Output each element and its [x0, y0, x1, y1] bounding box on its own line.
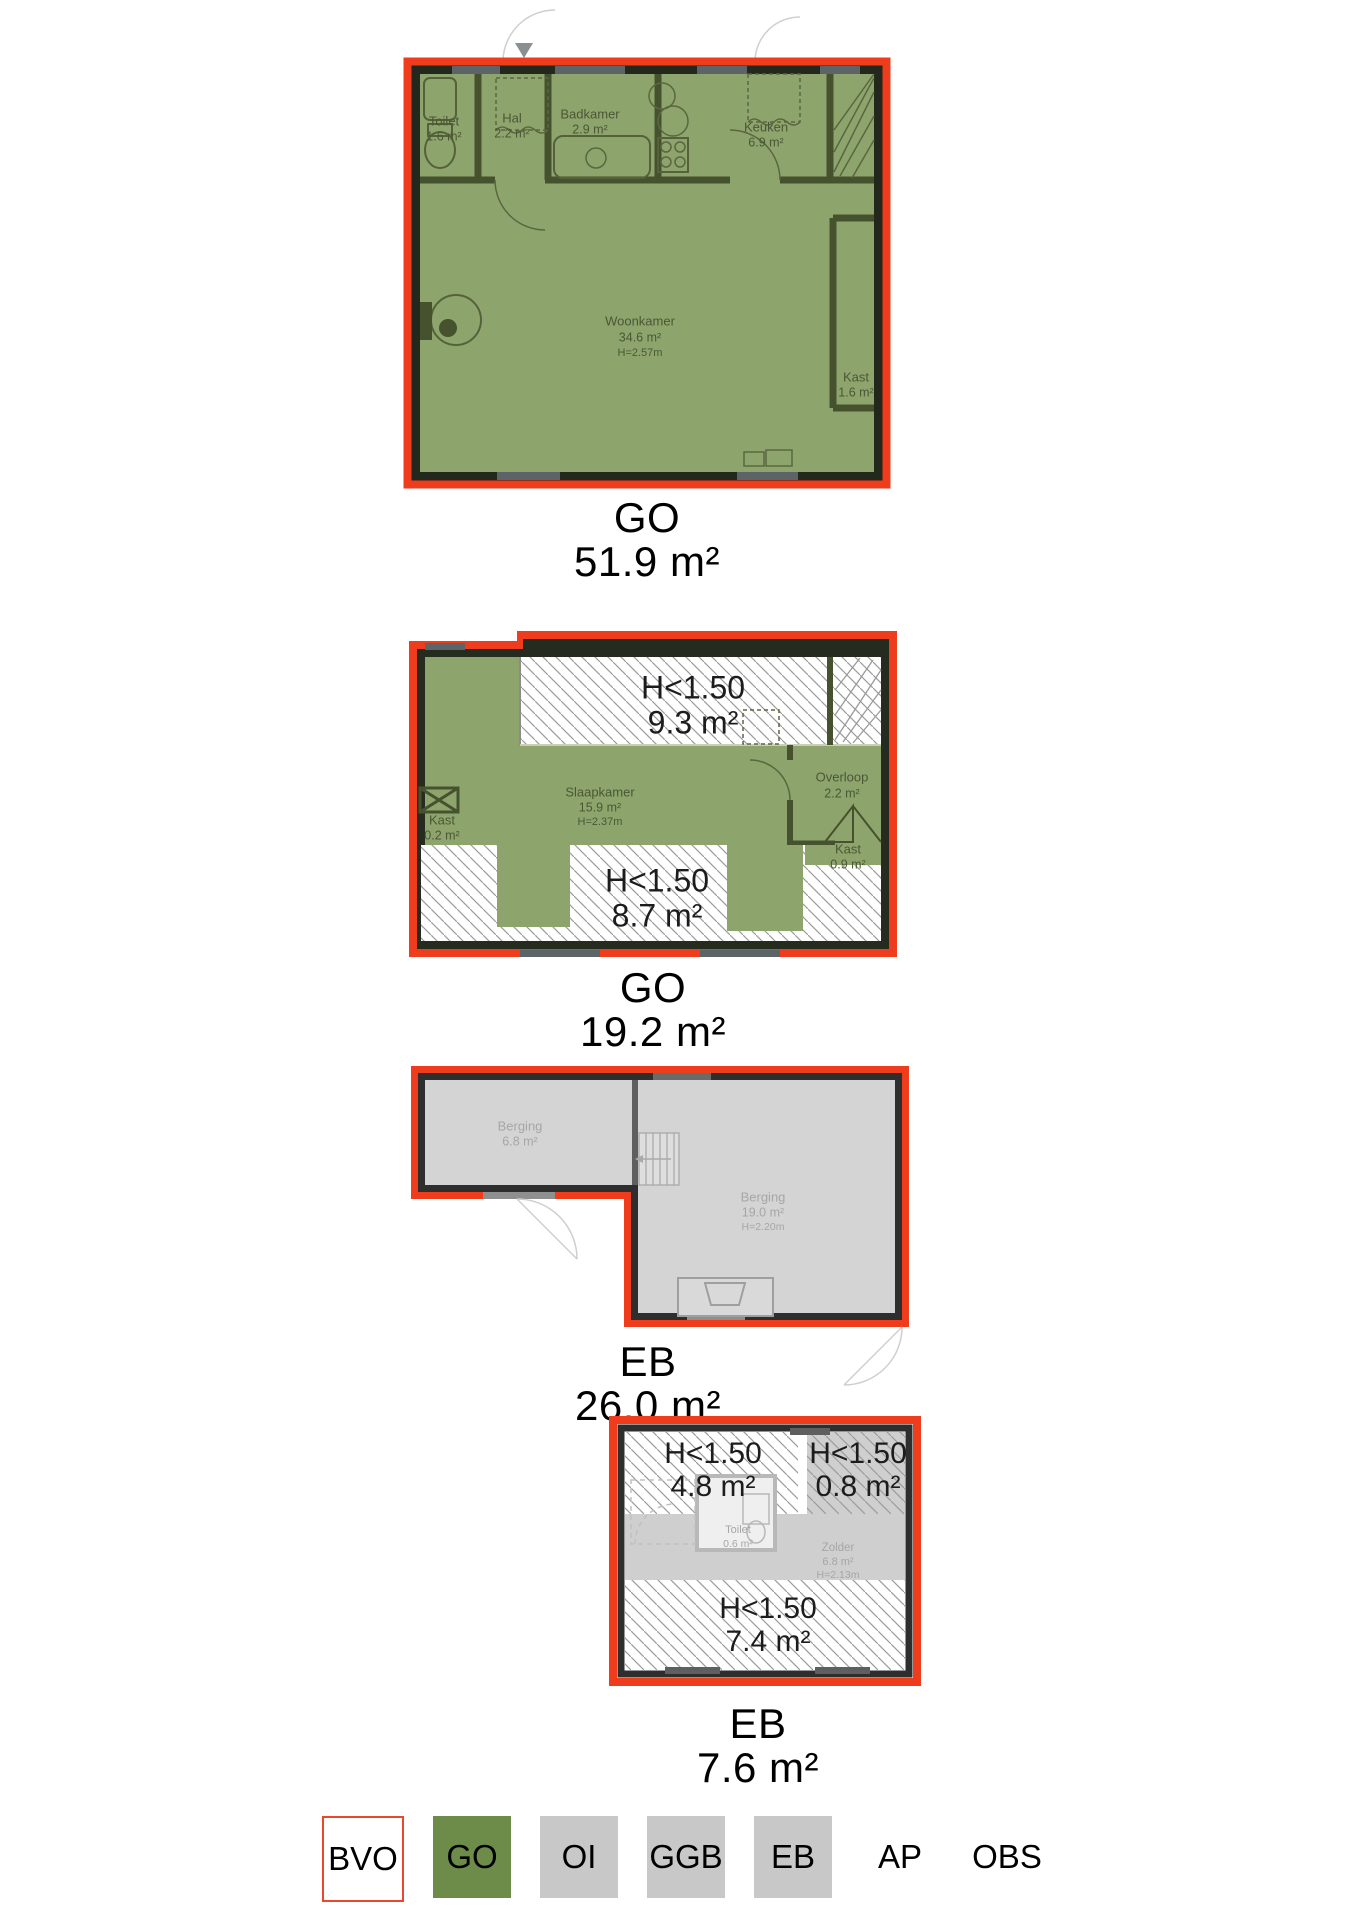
room-berging-large-area: 19.0 m² [742, 1205, 784, 1219]
room-toilet-name: Toilet [725, 1524, 751, 1536]
exterior-door-arcs [503, 10, 800, 60]
plan4-type: EB [608, 1702, 908, 1746]
room-toilet-area: 1.6 m² [426, 129, 461, 143]
h150-bottom-area: 8.7 m² [612, 897, 703, 933]
plan3-type: EB [498, 1340, 798, 1384]
legend-item-obs: OBS [968, 1816, 1046, 1898]
room-kast-name: Kast [843, 369, 869, 384]
room-berging-small-area: 6.8 m² [502, 1134, 537, 1148]
room-woonkamer-name: Woonkamer [605, 313, 676, 328]
stairs-icon [635, 1133, 679, 1185]
h150-bottom-name: H<1.50 [719, 1592, 817, 1625]
measurement-sheet: Toilet 1.6 m² Hal 2.2 m² Badkamer 2.9 m²… [0, 0, 1358, 1920]
room-overloop-name: Overloop [816, 769, 869, 784]
h150-right-area: 0.8 m² [815, 1470, 900, 1503]
legend-item-eb: EB [754, 1816, 832, 1898]
divider-wall [798, 1432, 807, 1514]
go-area-fill [420, 74, 874, 472]
h150-top-name: H<1.50 [641, 669, 745, 705]
room-berging-large-height: H=2.20m [742, 1221, 785, 1233]
legend-item-ap: AP [861, 1816, 939, 1898]
room-berging-small-name: Berging [498, 1118, 543, 1133]
door-arc-right [844, 1327, 902, 1385]
room-zolder-height: H=2.13m [817, 1569, 860, 1581]
room-toilet-name: Toilet [429, 113, 460, 128]
plan1-area: 51.9 m² [497, 540, 797, 584]
legend-item-bvo: BVO [322, 1816, 404, 1902]
room-badkamer-name: Badkamer [560, 106, 620, 121]
room-slaapkamer-name: Slaapkamer [565, 784, 635, 799]
room-overloop-area: 2.2 m² [824, 786, 859, 800]
room-kast-right-area: 0.9 m² [830, 857, 865, 871]
room-kast-area: 1.6 m² [838, 385, 873, 399]
room-slaapkamer-area: 15.9 m² [579, 800, 621, 814]
room-keuken-name: Keuken [744, 119, 788, 134]
room-keuken-area: 6.9 m² [748, 135, 783, 149]
plan2-area: 19.2 m² [503, 1010, 803, 1054]
legend: BVO GO OI GGB EB AP OBS [322, 1816, 1046, 1902]
room-woonkamer-height: H=2.57m [618, 347, 663, 359]
room-hal-name: Hal [502, 110, 522, 125]
door-arc-left [517, 1199, 577, 1259]
plan1-type: GO [497, 496, 797, 540]
room-zolder-name: Zolder [822, 1542, 855, 1554]
legend-item-oi: OI [540, 1816, 618, 1898]
floorplan-second-floor: H<1.50 9.3 m² Slaapkamer 15.9 m² H=2.37m… [405, 610, 905, 965]
legend-item-go: GO [433, 1816, 511, 1898]
room-berging-large-name: Berging [741, 1189, 786, 1204]
room-toilet-area: 0.6 m² [723, 1538, 753, 1550]
room-zolder-area: 6.8 m² [822, 1556, 854, 1568]
plan2-caption: GO 19.2 m² [503, 966, 803, 1054]
h150-left-name: H<1.50 [664, 1437, 762, 1470]
room-hal-area: 2.2 m² [494, 126, 529, 140]
room-badkamer-area: 2.9 m² [572, 122, 607, 136]
h150-bottom-name: H<1.50 [605, 862, 709, 898]
room-kast-right-name: Kast [835, 841, 861, 856]
room-kast-left-area: 0.2 m² [424, 828, 459, 842]
plan4-area: 7.6 m² [608, 1746, 908, 1790]
h150-left-area: 4.8 m² [670, 1470, 755, 1503]
plan4-caption: EB 7.6 m² [608, 1702, 908, 1790]
floorplan-attic: H<1.50 4.8 m² H<1.50 0.8 m² Toilet 0.6 m… [605, 1410, 925, 1695]
room-woonkamer-area: 34.6 m² [619, 330, 661, 344]
room-kast-left-name: Kast [429, 812, 455, 827]
entrance-marker-icon [515, 43, 533, 58]
h150-right-name: H<1.50 [809, 1437, 907, 1470]
plan2-type: GO [503, 966, 803, 1010]
h150-top-area: 9.3 m² [648, 704, 739, 740]
room-slaapkamer-height: H=2.37m [578, 816, 623, 828]
plan1-caption: GO 51.9 m² [497, 496, 797, 584]
dresser-icon [678, 1278, 773, 1316]
legend-item-ggb: GGB [647, 1816, 725, 1898]
h150-bottom-area: 7.4 m² [725, 1625, 810, 1658]
floorplan-first-floor: Toilet 1.6 m² Hal 2.2 m² Badkamer 2.9 m²… [400, 0, 900, 500]
